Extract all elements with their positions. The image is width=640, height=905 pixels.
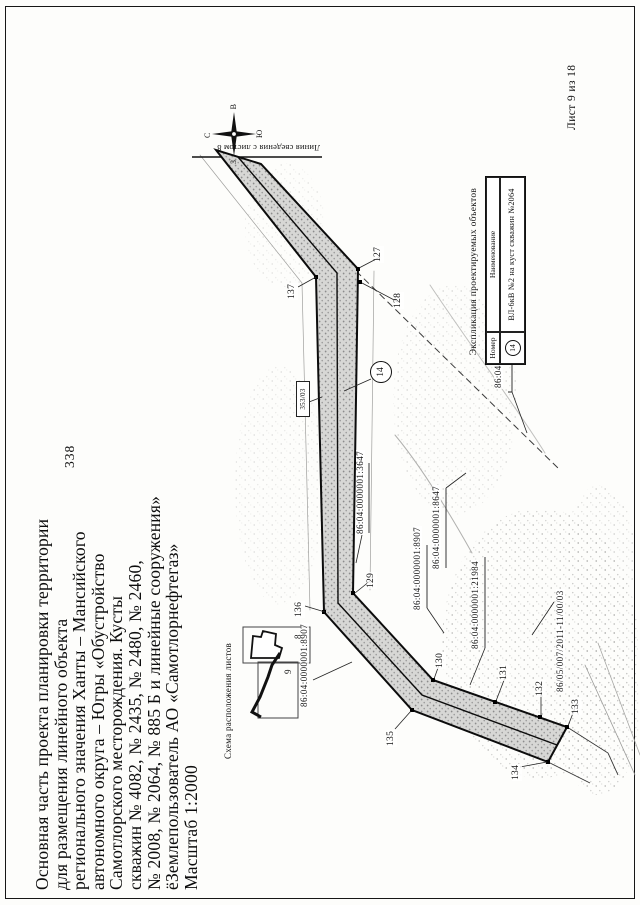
explication-row-name-cell: ВЛ-6кВ №2 на куст скважин №2064	[500, 177, 525, 332]
point-label-136: 136	[295, 601, 305, 618]
cadastral-label-86-05-007: 86/05/007/2011-11/00/03	[556, 589, 565, 693]
compass-label-west: З	[230, 160, 238, 164]
point-label-135: 135	[387, 730, 397, 747]
title-line: Основная часть проекта планировки террит…	[33, 440, 52, 890]
explication-caption: Экспликация проектируемых объектов	[469, 178, 479, 365]
sheet-number: Лист 9 из 18	[566, 65, 578, 130]
route-marker-14: 14	[370, 361, 392, 383]
page-number: 338	[62, 445, 78, 468]
cadastral-label-21984: 86:04:0000001:21984	[471, 560, 480, 650]
point-label-132: 132	[536, 680, 546, 697]
cadastral-label-3647: 86:04:0000001:3647	[356, 450, 365, 535]
point-label-131: 131	[500, 664, 510, 681]
title-line: Самотлорского месторождения. Кусты	[107, 440, 126, 890]
explication-col-number-header: Номер	[486, 332, 500, 364]
explication-row-number-cell: 14	[500, 332, 525, 364]
scanned-sheet: Основная часть проекта планировки террит…	[0, 0, 640, 905]
compass-icon: С Ю З В	[204, 104, 264, 164]
title-block: Основная часть проекта планировки террит…	[33, 440, 200, 890]
point-label-137: 137	[288, 283, 298, 300]
title-line: ёЗемлепользователь АО «Самотлорнефтегаз»	[163, 440, 182, 890]
title-line: Масштаб 1:2000	[182, 440, 201, 890]
point-label-133: 133	[572, 698, 582, 715]
title-line: для размещения линейного объекта	[52, 440, 71, 890]
title-line: автономного округа – Югры «Обустройство	[89, 440, 108, 890]
support-flag: 353/03	[296, 381, 310, 417]
title-line: № 2008, № 2064, № 885 Б и линейные соору…	[145, 440, 164, 890]
title-line: регионального значения Ханты – Мансийско…	[70, 440, 89, 890]
compass-label-north: С	[204, 133, 212, 138]
inset-sheet8-cluster-shape	[251, 631, 282, 658]
landscape-page: Основная часть проекта планировки террит…	[0, 0, 640, 905]
cadastral-label-8907-a: 86:04:0000001:8907	[413, 526, 422, 611]
inset-sheet-8-label: 8	[294, 635, 303, 640]
explication-row-number-circle: 14	[505, 340, 521, 356]
explication-table: Номер Наименование 14 ВЛ-6кВ №2 на куст …	[485, 176, 526, 365]
compass-label-south: Ю	[256, 130, 264, 138]
point-label-134: 134	[512, 764, 522, 781]
title-line: скважин № 4082, № 2435, № 2480, № 2460,	[126, 440, 145, 890]
match-line-label: Линия сведения с листом 8	[190, 144, 320, 153]
point-label-129: 129	[367, 572, 377, 589]
point-label-128: 128	[394, 292, 404, 309]
explication-col-name-header: Наименование	[486, 177, 500, 332]
point-label-127: 127	[374, 246, 384, 263]
inset-caption: Схема расположения листов	[223, 643, 233, 759]
cadastral-label-8647: 86:04:0000001:8647	[432, 485, 441, 570]
point-label-130: 130	[436, 652, 446, 669]
inset-sheet-9-label: 9	[284, 670, 293, 675]
compass-label-east: В	[230, 104, 238, 109]
